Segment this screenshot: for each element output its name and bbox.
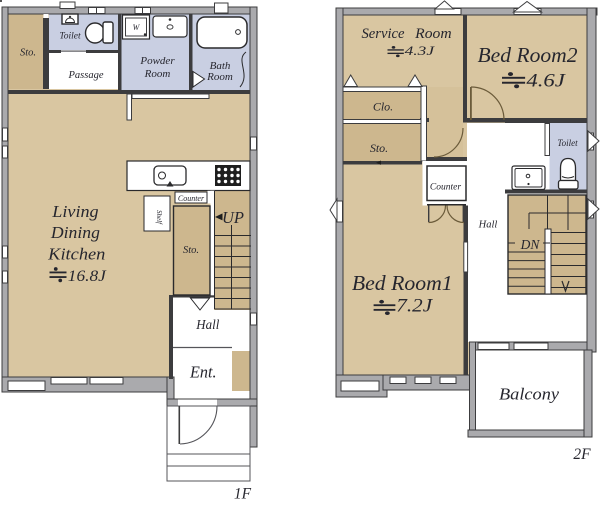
svg-text:Hall: Hall [195, 317, 219, 332]
svg-text:7.2J: 7.2J [396, 297, 433, 317]
svg-text:UP: UP [222, 208, 244, 227]
svg-text:16.8J: 16.8J [68, 268, 107, 285]
svg-text:Toilet: Toilet [59, 32, 81, 42]
svg-text:Service: Service [362, 26, 406, 42]
svg-text:Shelf: Shelf [155, 210, 163, 225]
svg-text:Counter: Counter [430, 183, 461, 193]
svg-text:DN: DN [520, 237, 541, 252]
svg-text:Ent.: Ent. [189, 363, 216, 382]
svg-text:Balcony: Balcony [499, 385, 559, 404]
svg-text:Room: Room [144, 68, 171, 80]
svg-text:2F: 2F [573, 446, 591, 463]
svg-text:Kitchen: Kitchen [47, 245, 105, 264]
svg-text:4.6J: 4.6J [526, 72, 565, 92]
svg-text:Passage: Passage [68, 70, 104, 81]
svg-text:Sto.: Sto. [20, 48, 36, 59]
svg-text:Room: Room [414, 26, 451, 42]
svg-text:Powder: Powder [139, 55, 175, 67]
svg-text:Bed Room1: Bed Room1 [352, 271, 453, 295]
svg-text:Bed Room2: Bed Room2 [478, 43, 578, 67]
svg-text:Living: Living [51, 202, 99, 221]
svg-text:Clo.: Clo. [373, 100, 393, 114]
svg-text:Toilet: Toilet [557, 138, 578, 148]
svg-text:Room: Room [206, 71, 233, 83]
svg-text:1F: 1F [234, 486, 252, 503]
svg-text:Counter: Counter [178, 194, 205, 203]
svg-text:4.3J: 4.3J [405, 43, 436, 58]
svg-text:Hall: Hall [478, 220, 498, 231]
svg-text:Dining: Dining [50, 223, 100, 242]
svg-text:Sto.: Sto. [183, 245, 199, 256]
svg-text:Sto.: Sto. [370, 141, 388, 155]
